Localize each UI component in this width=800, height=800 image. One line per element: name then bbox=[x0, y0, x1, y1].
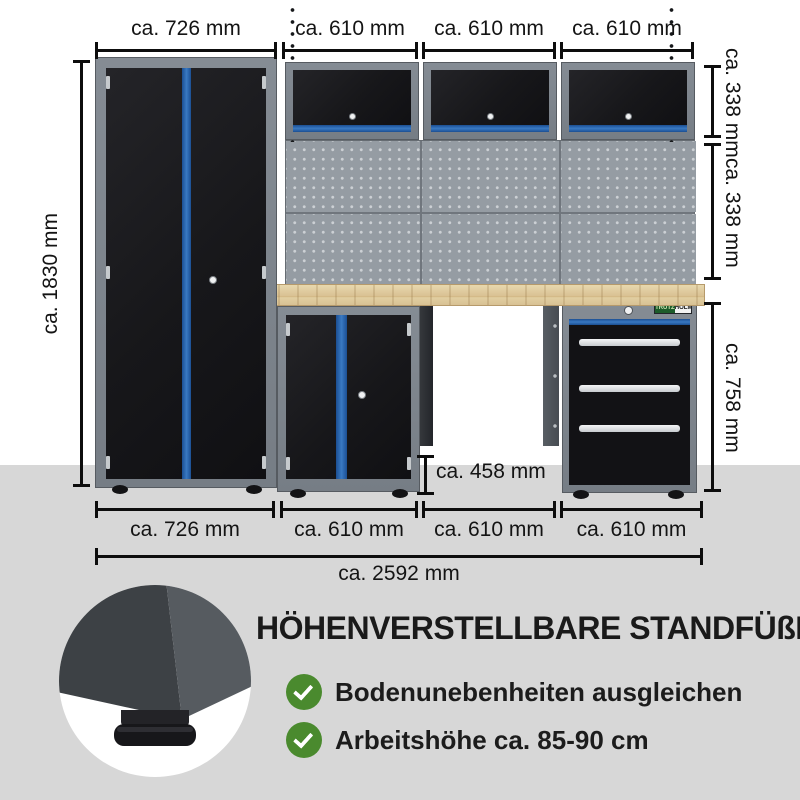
dim-label-top-1: ca. 726 mm bbox=[95, 16, 277, 42]
cabinet-foot bbox=[112, 485, 128, 494]
tall-cabinet-knob bbox=[209, 276, 217, 284]
feature-title: HÖHENVERSTELLBARE STANDFÜßE bbox=[256, 608, 796, 648]
cabinet-foot bbox=[246, 485, 262, 494]
pegboard-panel bbox=[286, 141, 420, 212]
pegboard-panel bbox=[561, 214, 696, 285]
workbench-leg bbox=[543, 306, 559, 446]
check-icon bbox=[286, 674, 322, 710]
pegboard-wall bbox=[285, 140, 695, 286]
dim-label-left: ca. 1830 mm bbox=[36, 60, 66, 487]
hinge bbox=[106, 76, 110, 89]
feature-item-label: Bodenunebenheiten ausgleichen bbox=[335, 677, 742, 708]
feature-item-label: Arbeitshöhe ca. 85-90 cm bbox=[335, 725, 649, 756]
hinge bbox=[106, 456, 110, 469]
dim-line-top-3 bbox=[422, 49, 556, 52]
drawer-handle bbox=[579, 339, 680, 346]
drawer-handle bbox=[579, 385, 680, 392]
dim-line-top-1 bbox=[95, 49, 277, 52]
hinge bbox=[262, 76, 266, 89]
dim-label-bottom-4: ca. 610 mm bbox=[560, 517, 703, 543]
cabinet-foot bbox=[668, 490, 684, 499]
pegboard-panel bbox=[422, 214, 559, 285]
dim-label-right-3: ca. 758 mm bbox=[719, 345, 745, 450]
floor-cabinet-doors bbox=[286, 315, 411, 479]
dim-line-top-2 bbox=[282, 49, 418, 52]
dim-line-bottom-4 bbox=[560, 508, 703, 511]
workbench-leg bbox=[420, 306, 433, 446]
dim-line-middle bbox=[424, 455, 427, 495]
drawer-cabinet-lock bbox=[624, 306, 633, 315]
hinge bbox=[286, 323, 290, 336]
dim-label-right-2: ca. 338 mm bbox=[719, 160, 745, 265]
pegboard-panel bbox=[422, 141, 559, 212]
pegboard-panel bbox=[561, 141, 696, 212]
cabinet-foot bbox=[290, 489, 306, 498]
feature-item: Bodenunebenheiten ausgleichen bbox=[286, 674, 742, 710]
dim-line-right-1 bbox=[711, 65, 714, 138]
hinge bbox=[106, 266, 110, 279]
wall-cabinet-blue-stripe bbox=[431, 125, 549, 132]
wall-cabinet-lock bbox=[625, 113, 632, 120]
hinge bbox=[286, 457, 290, 470]
dim-line-right-3 bbox=[711, 302, 714, 492]
dim-label-middle: ca. 458 mm bbox=[436, 459, 546, 485]
dim-line-bottom-2 bbox=[280, 508, 418, 511]
hinge bbox=[407, 457, 411, 470]
worktop bbox=[258, 284, 705, 306]
wall-cabinet-blue-stripe bbox=[293, 125, 411, 132]
dim-line-top-4 bbox=[560, 49, 694, 52]
dim-label-total: ca. 2592 mm bbox=[95, 561, 703, 587]
dim-label-right-2-text: ca. 338 mm bbox=[720, 158, 744, 268]
check-glyph bbox=[293, 680, 313, 701]
adjustable-foot-photo bbox=[59, 585, 251, 777]
hinge bbox=[262, 266, 266, 279]
wall-cabinet-3 bbox=[561, 62, 695, 140]
floor-cabinet-knob bbox=[358, 391, 366, 399]
dim-label-right-1-text: ca. 338 mm bbox=[720, 48, 744, 158]
check-icon bbox=[286, 722, 322, 758]
wall-cabinet-2 bbox=[423, 62, 557, 140]
dim-label-top-2: ca. 610 mm bbox=[282, 16, 418, 42]
dim-line-total bbox=[95, 555, 703, 558]
wall-cabinet-blue-stripe bbox=[569, 125, 687, 132]
dim-label-top-4: ca. 610 mm bbox=[560, 16, 694, 42]
feature-item: Arbeitshöhe ca. 85-90 cm bbox=[286, 722, 649, 758]
floor-cabinet bbox=[277, 306, 420, 492]
wall-cabinet-1 bbox=[285, 62, 419, 140]
tall-cabinet bbox=[95, 57, 277, 488]
wall-cabinet-lock bbox=[349, 113, 356, 120]
cabinet-foot bbox=[573, 490, 589, 499]
tall-cabinet-blue-stripe bbox=[182, 68, 191, 479]
check-glyph bbox=[293, 728, 313, 749]
dim-line-left bbox=[80, 60, 83, 487]
dim-label-right-1: ca. 338 mm bbox=[719, 55, 745, 150]
hinge bbox=[407, 323, 411, 336]
cabinet-foot bbox=[392, 489, 408, 498]
dim-label-top-3: ca. 610 mm bbox=[422, 16, 556, 42]
dim-label-bottom-2: ca. 610 mm bbox=[280, 517, 418, 543]
dim-line-bottom-3 bbox=[422, 508, 556, 511]
dim-line-bottom-1 bbox=[95, 508, 275, 511]
pegboard-panel bbox=[286, 214, 420, 285]
foot-pad bbox=[114, 724, 196, 746]
dim-label-right-3-text: ca. 758 mm bbox=[720, 343, 744, 453]
drawer-cabinet: TRUTZ HOLM bbox=[562, 300, 697, 493]
drawer-handle bbox=[579, 425, 680, 432]
hinge bbox=[262, 456, 266, 469]
drawer-stack bbox=[569, 325, 690, 485]
dim-label-left-text: ca. 1830 mm bbox=[39, 213, 63, 334]
dim-line-right-2 bbox=[711, 143, 714, 280]
dim-label-bottom-3: ca. 610 mm bbox=[422, 517, 556, 543]
wall-cabinet-lock bbox=[487, 113, 494, 120]
dim-label-bottom-1: ca. 726 mm bbox=[95, 517, 275, 543]
floor-cabinet-blue-stripe bbox=[336, 315, 347, 479]
wood-grain bbox=[259, 285, 704, 305]
